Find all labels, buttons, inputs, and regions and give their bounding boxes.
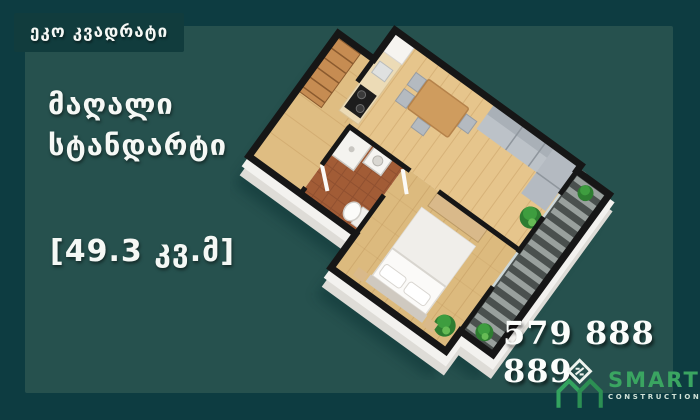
- sm-monogram-icon: [552, 358, 604, 412]
- headline: მაღალი სტანდარტი: [48, 84, 227, 166]
- logo-text: SMART CONSTRUCTION: [608, 370, 700, 401]
- logo-name: SMART: [608, 370, 700, 391]
- eco-square-badge: ეკო კვადრატი: [14, 13, 184, 52]
- area-label: [49.3 კვ.მ]: [50, 234, 235, 269]
- logo-subtitle: CONSTRUCTION: [608, 394, 700, 401]
- headline-line1: მაღალი: [48, 84, 227, 125]
- smart-construction-logo: SMART CONSTRUCTION: [552, 358, 700, 412]
- flyer-canvas: ეკო კვადრატი მაღალი სტანდარტი [49.3 კვ.მ…: [0, 0, 700, 420]
- badge-label: ეკო კვადრატი: [30, 22, 168, 42]
- headline-line2: სტანდარტი: [48, 125, 227, 166]
